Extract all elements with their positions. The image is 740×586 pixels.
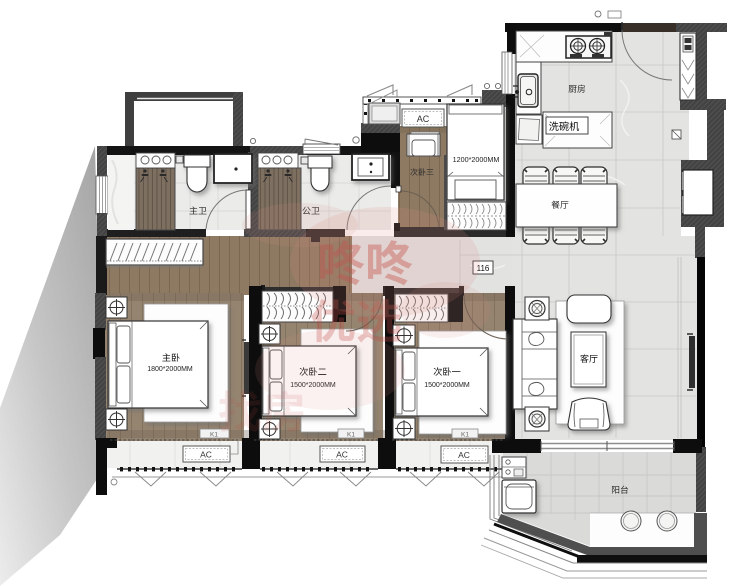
svg-text:AC: AC xyxy=(458,450,470,460)
svg-text:1500*2000MM: 1500*2000MM xyxy=(424,382,470,389)
svg-text:K1: K1 xyxy=(347,432,355,439)
svg-text:AC: AC xyxy=(200,450,212,460)
svg-text:K1: K1 xyxy=(461,432,469,439)
svg-text:AC: AC xyxy=(336,450,348,460)
svg-text:K1: K1 xyxy=(210,432,218,439)
svg-text:AC: AC xyxy=(417,114,430,124)
svg-text:1800*2000MM: 1800*2000MM xyxy=(147,366,193,373)
svg-text:1200*2000MM: 1200*2000MM xyxy=(453,155,500,164)
